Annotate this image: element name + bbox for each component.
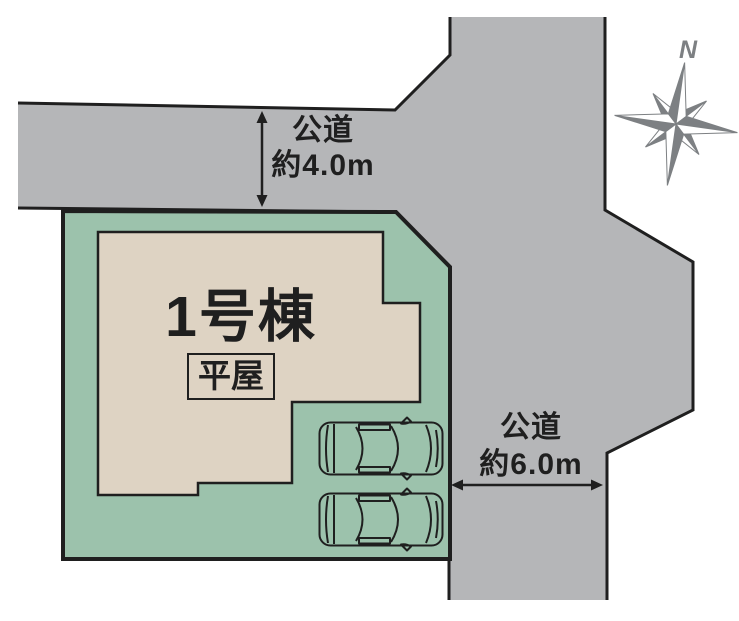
road-top-width: 約4.0m xyxy=(223,148,423,183)
road-top-label: 公道 約4.0m xyxy=(223,113,423,183)
road-right-name: 公道 xyxy=(431,409,631,446)
road-right-label: 公道 約6.0m xyxy=(431,409,631,483)
road-right-width: 約6.0m xyxy=(431,446,631,483)
site-plan-canvas: 公道 約4.0m 公道 約6.0m 1号棟 平屋 N xyxy=(0,0,739,621)
road-top-name: 公道 xyxy=(223,113,423,148)
building-type-badge: 平屋 xyxy=(187,353,275,400)
compass-rose-icon xyxy=(606,54,739,194)
road-border-top xyxy=(18,17,450,110)
building-name-label: 1号棟 xyxy=(101,287,381,347)
compass-north-label: N xyxy=(666,36,710,65)
